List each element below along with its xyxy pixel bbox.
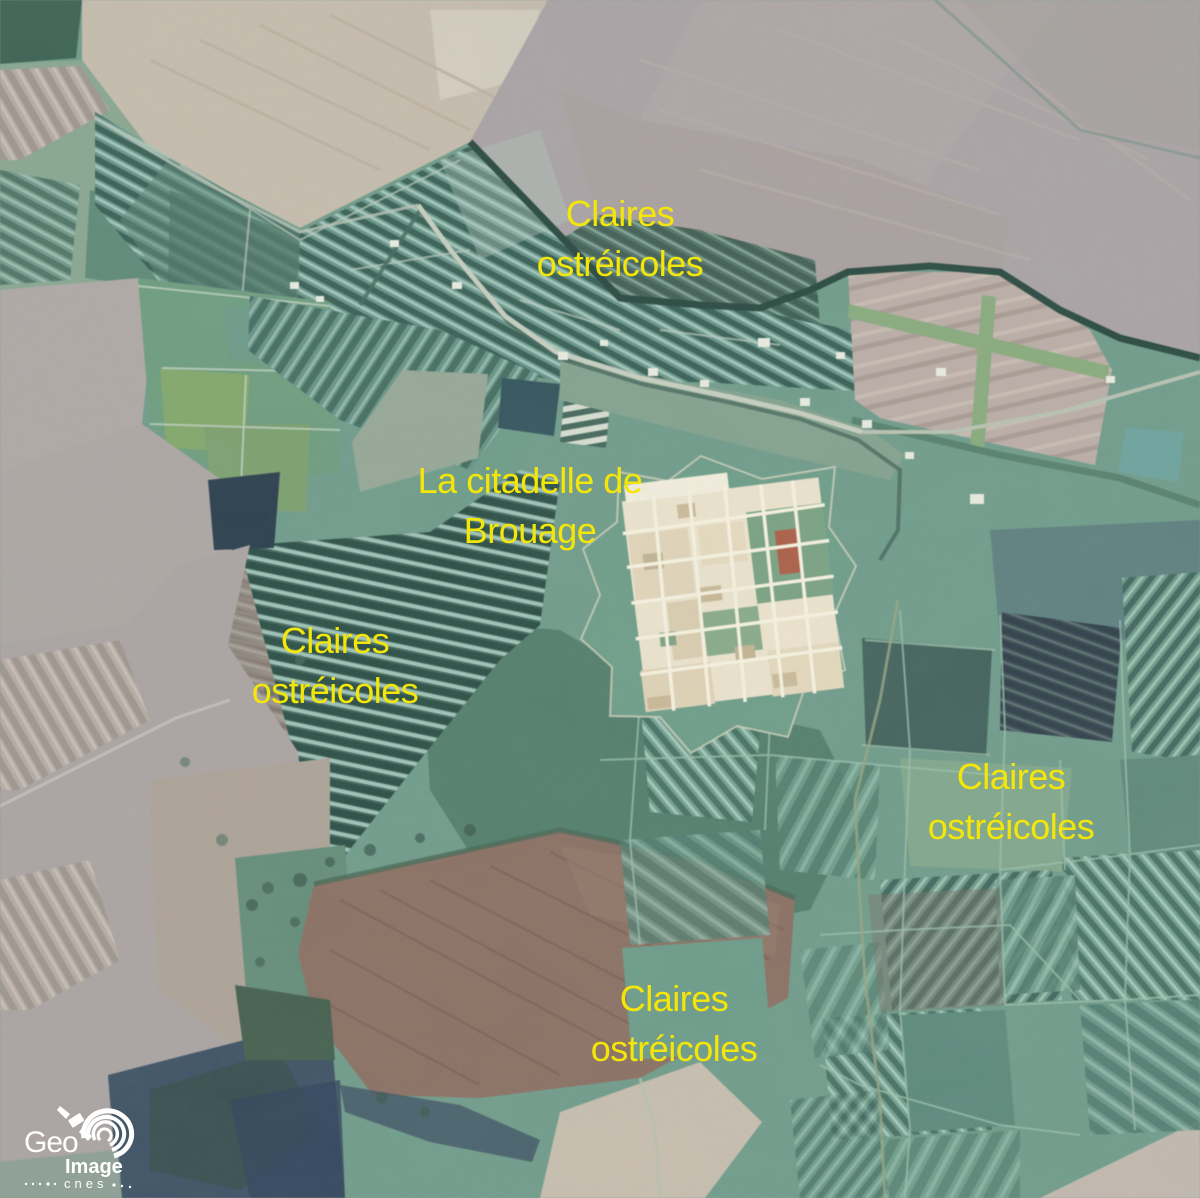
svg-text:Geo: Geo xyxy=(24,1126,78,1159)
svg-text:cnes: cnes xyxy=(64,1176,107,1190)
svg-text:Image: Image xyxy=(65,1156,123,1178)
